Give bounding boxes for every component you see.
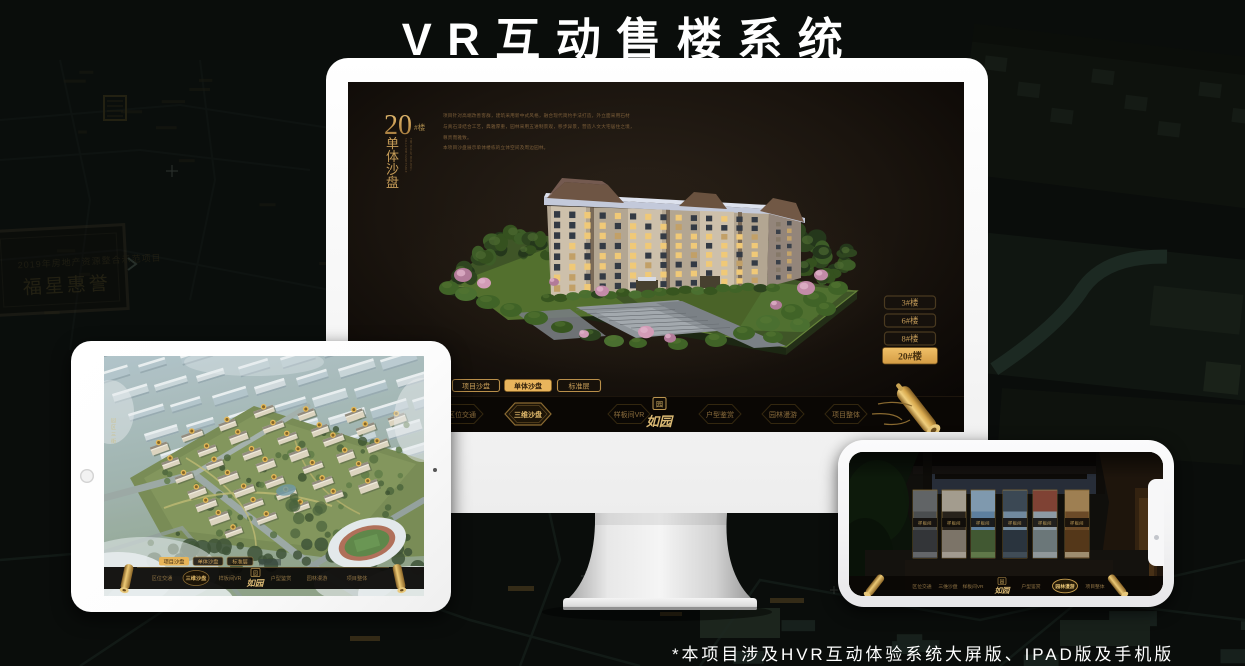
svg-text:项目整体: 项目整体 bbox=[832, 410, 860, 419]
svg-text:户型鉴赏: 户型鉴赏 bbox=[1021, 583, 1040, 590]
svg-text:区: 区 bbox=[111, 425, 116, 431]
svg-text:项目整体: 项目整体 bbox=[347, 574, 369, 582]
svg-text:#楼: #楼 bbox=[414, 122, 426, 132]
svg-text:项目整体: 项目整体 bbox=[1085, 583, 1104, 590]
svg-text:样板间: 样板间 bbox=[918, 520, 932, 527]
svg-text:尊贵而雅致。: 尊贵而雅致。 bbox=[443, 134, 472, 141]
svg-text:如园: 如园 bbox=[995, 586, 1011, 595]
svg-text:福星惠誉: 福星惠誉 bbox=[22, 272, 111, 299]
svg-text:VILLA THE SAND TABLE: VILLA THE SAND TABLE bbox=[404, 138, 408, 173]
svg-text:园林漫游: 园林漫游 bbox=[1055, 583, 1074, 590]
svg-text:项目沙盘: 项目沙盘 bbox=[164, 557, 185, 565]
svg-text:样板间: 样板间 bbox=[1070, 520, 1084, 527]
svg-text:区位交通: 区位交通 bbox=[448, 410, 476, 419]
svg-text:街: 街 bbox=[111, 438, 116, 445]
svg-text:20#楼: 20#楼 bbox=[898, 351, 922, 363]
svg-text:8#楼: 8#楼 bbox=[901, 334, 919, 344]
svg-text:区位交通: 区位交通 bbox=[912, 583, 931, 590]
svg-text:园林漫游: 园林漫游 bbox=[769, 410, 797, 419]
svg-text:园: 园 bbox=[656, 401, 663, 409]
svg-text:如园: 如园 bbox=[246, 578, 265, 588]
svg-text:三维沙盘: 三维沙盘 bbox=[514, 410, 542, 419]
svg-text:样板间VR: 样板间VR bbox=[614, 410, 645, 419]
svg-text:与真石漆结合工艺，典雅厚重，园林采用五进制景观，移步异景，营: 与真石漆结合工艺，典雅厚重，园林采用五进制景观，移步异景，营造人文大宅居住之境， bbox=[443, 123, 635, 130]
svg-text:园: 园 bbox=[111, 418, 116, 424]
svg-text:样板间VR: 样板间VR bbox=[219, 574, 242, 582]
svg-text:项目针对高端改善客群，建筑采用新中式风格，融合现代简约手法打: 项目针对高端改善客群，建筑采用新中式风格，融合现代简约手法打造，外立面采用石材 bbox=[443, 112, 630, 119]
svg-text:如园: 如园 bbox=[646, 414, 674, 429]
svg-text:THE SINGLE BUILDING: THE SINGLE BUILDING bbox=[409, 138, 413, 171]
svg-text:样板间VR: 样板间VR bbox=[962, 583, 984, 590]
svg-text:标准层: 标准层 bbox=[569, 382, 590, 391]
svg-text:样板间: 样板间 bbox=[1008, 520, 1022, 527]
svg-text:户型鉴赏: 户型鉴赏 bbox=[271, 574, 292, 582]
svg-text:6#楼: 6#楼 bbox=[901, 316, 919, 326]
svg-text:本项目沙盘展示单体楼栋的立体空间及周边园林。: 本项目沙盘展示单体楼栋的立体空间及周边园林。 bbox=[443, 144, 548, 151]
svg-text:园林漫游: 园林漫游 bbox=[307, 574, 328, 582]
svg-text:样板间: 样板间 bbox=[1038, 520, 1052, 527]
svg-text:3#楼: 3#楼 bbox=[901, 298, 919, 308]
svg-text:样板间: 样板间 bbox=[947, 520, 961, 527]
svg-text:单体沙盘: 单体沙盘 bbox=[514, 382, 542, 391]
svg-text:户型鉴赏: 户型鉴赏 bbox=[706, 410, 734, 419]
svg-text:三: 三 bbox=[111, 432, 116, 438]
svg-text:标准层: 标准层 bbox=[232, 557, 248, 565]
svg-text:园: 园 bbox=[253, 571, 258, 577]
svg-text:三维沙盘: 三维沙盘 bbox=[186, 574, 208, 582]
svg-text:三维沙盘: 三维沙盘 bbox=[938, 583, 957, 590]
svg-text:区位交通: 区位交通 bbox=[152, 574, 174, 582]
svg-text:单体沙盘: 单体沙盘 bbox=[198, 557, 219, 565]
svg-text:项目沙盘: 项目沙盘 bbox=[462, 382, 490, 391]
svg-text:样板间: 样板间 bbox=[976, 520, 990, 527]
